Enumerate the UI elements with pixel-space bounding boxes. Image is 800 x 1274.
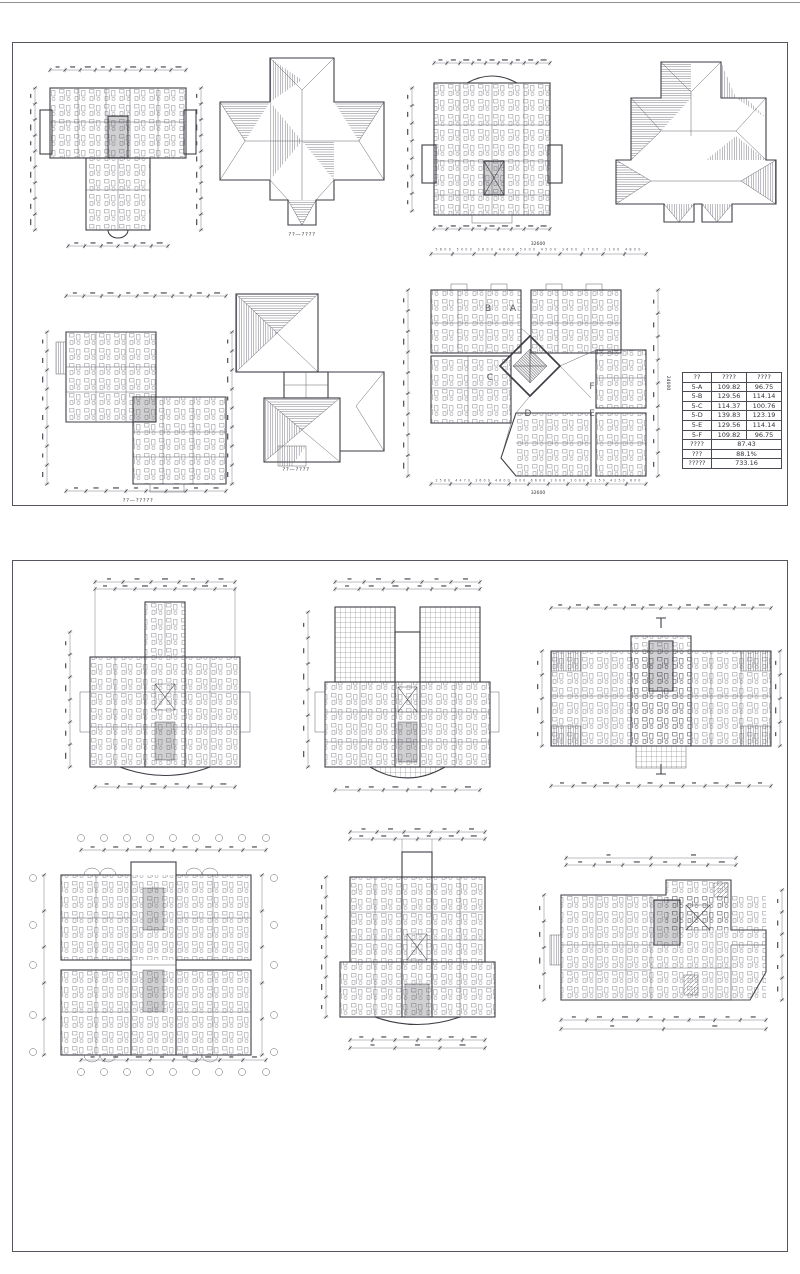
dim-top-total: 32600	[531, 241, 546, 247]
floor-plan-terraces	[300, 572, 502, 804]
floor-plan-step-caption: ??—?????	[123, 498, 154, 504]
floor-plan-twin-1	[60, 572, 268, 804]
grid-bubbles-right	[271, 875, 278, 1056]
table-row: 5-F 109.82 96.75	[683, 430, 782, 440]
floor-plan-four-unit	[26, 820, 278, 1082]
table-header-cell: ??	[683, 373, 712, 383]
unit-label-d: D	[525, 409, 532, 419]
dim-bottom-total: 32600	[531, 490, 546, 496]
area-table: ?? ???? ???? 5-A 109.82 96.75 5-B 129.56…	[682, 372, 782, 469]
floor-plan-t-shape	[28, 58, 208, 258]
unit-label-f: F	[589, 382, 594, 392]
grid-bubbles-top	[78, 835, 270, 842]
dim-right-total: 24600	[665, 376, 671, 391]
table-row: 5-B 129.56 114.14	[683, 392, 782, 402]
table-row: 5-C 114.37 100.76	[683, 401, 782, 411]
floor-plan-stepped: ??—?????	[38, 272, 236, 506]
table-row: 5-D 139.83 123.19	[683, 411, 782, 421]
roof-plan-stepped-right	[606, 56, 786, 228]
unit-label-a: A	[510, 304, 517, 314]
table-header-cell: ????	[712, 373, 747, 383]
grid-bubbles-left	[30, 875, 37, 1056]
unit-label-c: C	[487, 373, 493, 383]
table-summary-row: ????? 733.16	[683, 459, 782, 469]
dim-bottom-segments: 2580 4470 3600 4600 600 6600 2000 2000 2…	[436, 479, 641, 483]
section-mark-top	[656, 618, 666, 628]
roof-plan-stepped-mid: ??—????	[226, 276, 398, 472]
roof-plan-cross: ??—????	[212, 50, 392, 240]
grid-bubbles-bottom	[78, 1069, 270, 1076]
dim-top-segments: 5600 5000 3600 4600 5000 4500 3600 1700 …	[436, 248, 641, 252]
floor-plan-twin-square	[402, 53, 580, 238]
floor-plan-octagon	[536, 850, 790, 1048]
page-top-rule	[0, 2, 800, 3]
table-summary-row: ???? 87.43	[683, 440, 782, 450]
cad-sheet-page: { "captions": { "roof_plan_1": "??\u2014…	[0, 0, 800, 1274]
floor-plan-tower-pinwheel: 32600 5600 5000 3600 4600 5000 4500 3600…	[396, 238, 674, 504]
unit-label-e: E	[589, 409, 595, 419]
floor-plan-twin-2	[320, 822, 512, 1070]
table-header-cell: ????	[747, 373, 782, 383]
unit-label-b: B	[485, 304, 491, 314]
roof-plan-2-caption: ??—????	[282, 467, 309, 473]
table-summary-row: ??? 88.1%	[683, 449, 782, 459]
floor-plan-wide-slab	[536, 596, 786, 798]
table-row: 5-A 109.82 96.75	[683, 382, 782, 392]
roof-plan-1-caption: ??—????	[288, 232, 315, 238]
table-row: 5-E 129.56 114.14	[683, 420, 782, 430]
